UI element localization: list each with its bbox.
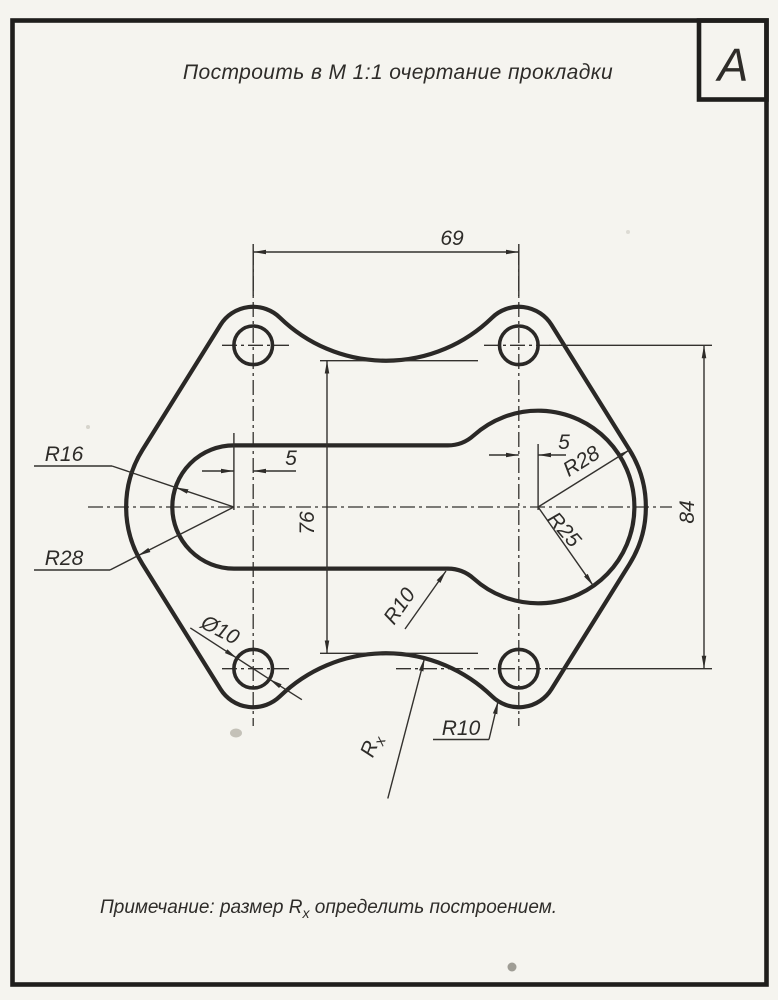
dimension-84: 84 — [549, 345, 712, 668]
dim-69-label: 69 — [440, 227, 464, 250]
leader-rx: Rx — [356, 658, 424, 798]
footnote-text-2: определить построением. — [309, 897, 557, 918]
label-r28-left: R28 — [45, 547, 84, 570]
leader-r10-fillet: R10 — [379, 571, 446, 629]
footnote-text: Примечание: размер R — [100, 897, 303, 918]
leader-r10-corner: R10 — [433, 701, 498, 740]
leader-r25: R25 — [538, 507, 593, 586]
dim-5-left-label: 5 — [285, 447, 297, 470]
drawing-canvas: А Построить в М 1:1 очертание прокладки … — [0, 0, 778, 1000]
label-r25: R25 — [543, 508, 586, 552]
dim-84-label: 84 — [676, 500, 699, 523]
dim-76-label: 76 — [296, 511, 319, 535]
dimension-69: 69 — [253, 227, 519, 296]
variant-letter: А — [715, 39, 749, 91]
footnote: Примечание: размер Rx определить построе… — [100, 897, 557, 921]
dimension-5-right: 5 — [489, 431, 570, 510]
scanned-drawing-sheet: А Построить в М 1:1 очертание прокладки … — [0, 0, 778, 1000]
label-rx: Rx — [356, 730, 390, 762]
page-title: Построить в М 1:1 очертание прокладки — [183, 61, 613, 84]
label-dia10: Ø10 — [196, 610, 243, 649]
dim-5-right-label: 5 — [558, 431, 570, 454]
label-r10-corner: R10 — [442, 717, 481, 740]
label-r16: R16 — [45, 443, 84, 466]
label-r10-fillet: R10 — [379, 584, 420, 629]
